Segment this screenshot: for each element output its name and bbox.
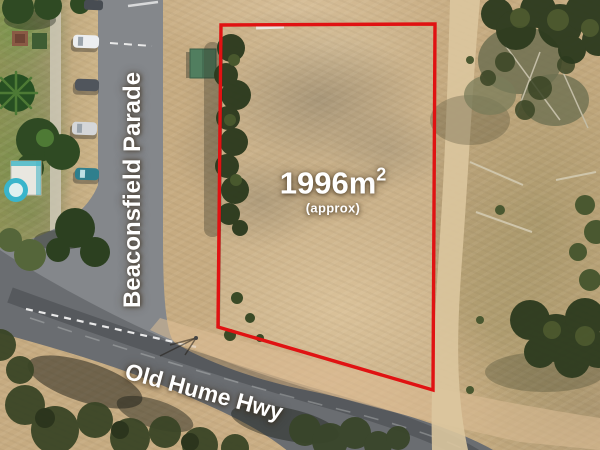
parked-car bbox=[84, 0, 103, 10]
area-value: 1996m bbox=[280, 166, 377, 201]
treeline-bottom-right bbox=[485, 298, 600, 392]
footpath bbox=[50, 0, 61, 236]
parked-car bbox=[73, 79, 100, 96]
area-approx: (approx) bbox=[280, 202, 387, 215]
street-label-beaconsfield-parade: Beaconsfield Parade bbox=[119, 72, 147, 308]
parked-car bbox=[71, 35, 100, 53]
bbq-brick-pad bbox=[12, 31, 28, 46]
corner-trees bbox=[2, 0, 90, 30]
wading-pool bbox=[4, 178, 28, 202]
aerial-photo: 1996m2 (approx) Beaconsfield Parade Old … bbox=[0, 0, 600, 450]
area-superscript: 2 bbox=[376, 164, 386, 184]
parked-car bbox=[70, 121, 98, 139]
small-garden-shed bbox=[32, 33, 47, 49]
palm-tree bbox=[0, 72, 37, 114]
terrain-overlay bbox=[0, 0, 600, 450]
fallen-logs bbox=[470, 162, 596, 232]
dirt-track bbox=[432, 0, 480, 450]
parked-car bbox=[73, 168, 100, 185]
area-label: 1996m2 (approx) bbox=[280, 167, 387, 214]
